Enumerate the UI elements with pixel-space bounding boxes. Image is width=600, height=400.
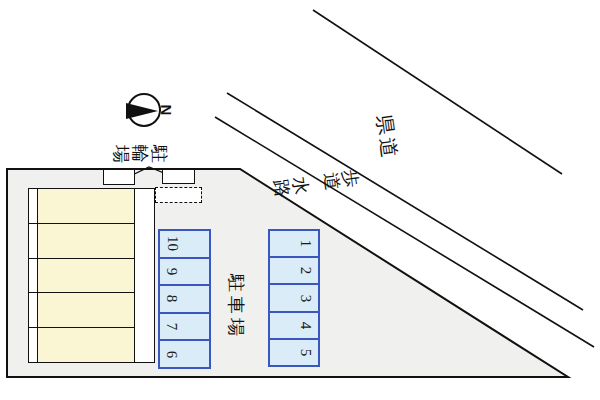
parking-stall-column-left: 10 9 8 7 6 [158,229,211,369]
stall-number: 8 [163,286,181,312]
building-left-cell [29,293,37,328]
compass-north-label: N [158,105,175,116]
building-unit [38,189,134,224]
building [28,188,155,363]
stall-number: 7 [163,314,181,340]
site-plan: 10 9 8 7 6 1 2 3 4 5 県道 歩道 水路 駐輪場 駐車場 N [0,0,600,400]
parking-stall: 2 [270,258,318,285]
stall-number: 3 [297,285,315,310]
parking-stall: 4 [270,313,318,340]
stall-number: 6 [163,341,181,367]
parking-stall: 6 [160,341,209,367]
building-corridor-strip [135,189,154,362]
prefectural-road-outer-line [313,10,562,174]
stall-number: 9 [163,259,181,285]
building-left-strip [29,189,38,362]
parking-lot-label: 駐車場 [227,274,245,336]
bicycle-rack-right [162,169,195,184]
building-unit [38,224,134,259]
parking-stall: 9 [160,259,209,287]
bicycle-rack-left [103,169,135,185]
parking-stall: 3 [270,285,318,312]
stall-number: 2 [297,258,315,283]
parking-stall: 1 [270,231,318,258]
building-unit [38,259,134,294]
stall-number: 5 [297,340,315,365]
building-unit [38,328,134,362]
building-left-cell [29,189,37,224]
building-units [38,189,135,362]
stall-number: 10 [163,231,181,257]
building-unit [38,293,134,328]
stall-number: 4 [297,313,315,338]
parking-stall-column-right: 1 2 3 4 5 [268,229,320,367]
parking-stall: 7 [160,314,209,342]
dashed-outline-area [155,187,202,203]
stall-number: 1 [297,231,315,256]
parking-stall: 5 [270,340,318,365]
parking-stall: 8 [160,286,209,314]
building-left-cell [29,328,37,362]
parking-stall: 10 [160,231,209,259]
building-left-cell [29,224,37,259]
building-left-cell [29,259,37,294]
bicycle-parking-label: 駐輪場 [112,145,168,163]
